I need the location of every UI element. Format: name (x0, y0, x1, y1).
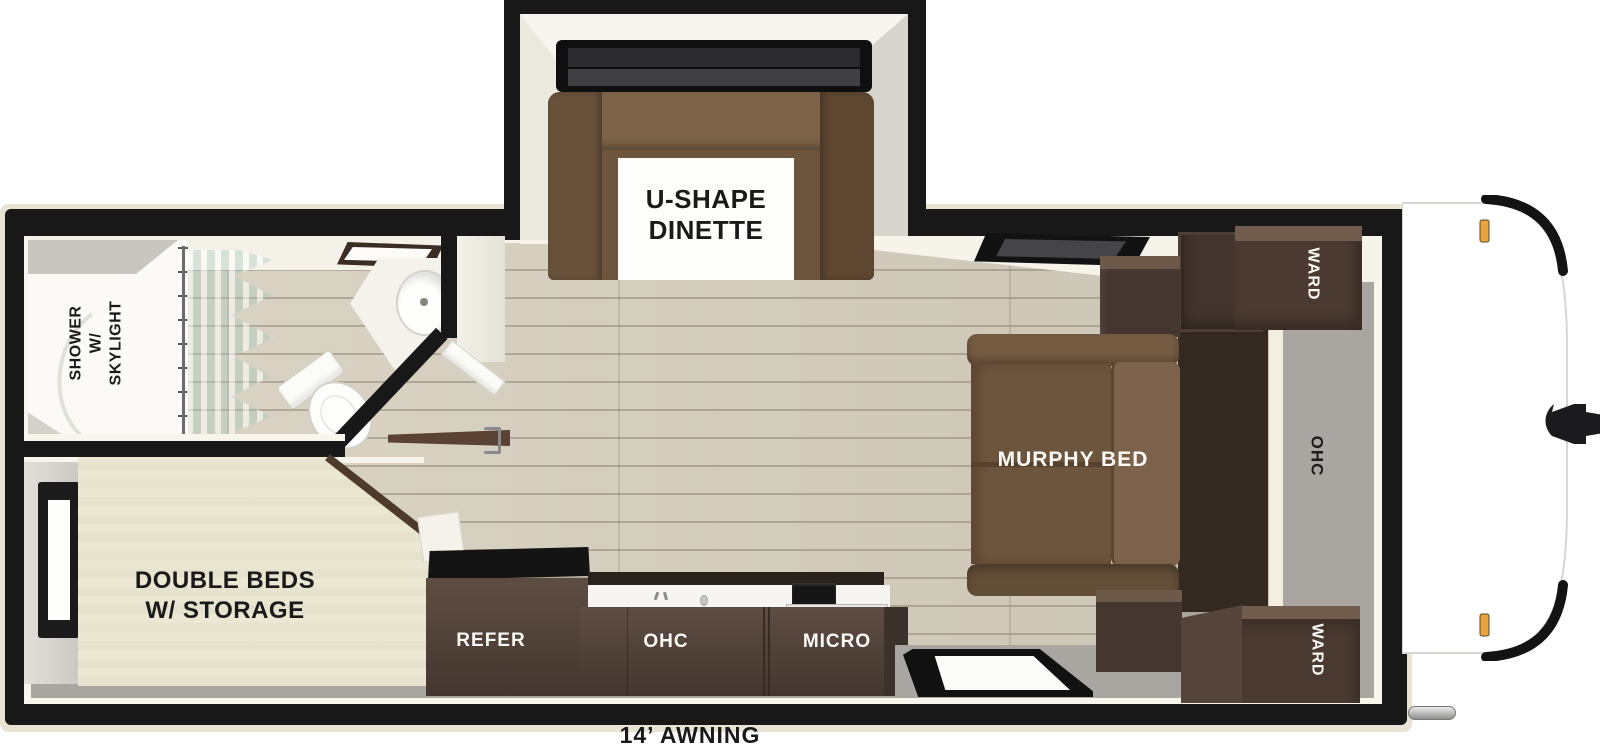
micro-label: MICRO (757, 631, 917, 653)
dinette-label-line1: U-SHAPE (618, 184, 794, 215)
shower-curtain-rod (182, 246, 185, 448)
dinette-arm-left (548, 92, 602, 280)
double-beds-label-line2: W/ STORAGE (95, 596, 355, 626)
dinette-window-pane-bottom (568, 69, 860, 86)
dinette-label-line2: DINETTE (618, 215, 794, 246)
refer-label: REFER (410, 630, 572, 652)
ohc-front-label: OHC (1294, 426, 1338, 486)
murphy-bed-sofa: MURPHY BED (967, 334, 1179, 596)
bedroom-window-pane (48, 500, 70, 620)
murphy-bed-label: MURPHY BED (967, 448, 1179, 472)
ward-top-label-text: WARD (1303, 248, 1321, 301)
ohc-front-label-text: OHC (1306, 436, 1326, 477)
awning-label: 14’ AWNING (540, 722, 840, 749)
murphy-frame-wall-strip (1268, 318, 1283, 610)
nightstand-top-front (1100, 269, 1180, 337)
dinette-slideout-wall-right (908, 0, 926, 240)
bath-sink-drain (420, 298, 428, 306)
dinette-label-box: U-SHAPE DINETTE (618, 158, 794, 280)
dinette-slideout-wall-left (504, 0, 520, 240)
double-beds-label: DOUBLE BEDS W/ STORAGE (95, 566, 355, 630)
murphy-frame (1178, 318, 1268, 612)
front-cap-body (1402, 203, 1567, 653)
ohc-kitchen-label: OHC (586, 631, 746, 653)
ward-top-label: WARD (1292, 240, 1332, 308)
dinette-arm-right (820, 92, 874, 280)
bath-lining-bottom (24, 434, 345, 441)
kitchen-backsplash (588, 572, 884, 585)
shower-label-line1: SHOWER (66, 301, 86, 386)
ward-top-bevel (1235, 226, 1362, 241)
nightstand-top-bevel (1100, 256, 1180, 269)
bumper-bar (1408, 706, 1456, 720)
shower-label-line2: W/ SKYLIGHT (86, 301, 126, 386)
marker-light-bottom (1480, 614, 1489, 636)
double-beds-label-line1: DOUBLE BEDS (95, 566, 355, 596)
ward-bottom-label-text: WARD (1307, 624, 1325, 677)
dinette-slideout-wall-top (504, 0, 926, 14)
bath-wall-face-right (457, 236, 505, 362)
dinette-window-pane-top (568, 48, 860, 67)
front-cap (1402, 195, 1600, 661)
marker-light-top (1480, 220, 1489, 242)
bath-wall-vertical (441, 226, 457, 338)
bath-bedroom-wall (5, 441, 345, 457)
refrigerator-top (428, 547, 590, 580)
wall-table-clamp (484, 427, 501, 454)
floorplan-canvas: SHOWER W/ SKYLIGHT DOUBLE BEDS W/ STORAG… (0, 0, 1600, 749)
kitchen-sink-dot (700, 595, 708, 606)
ward-bottom-label: WARD (1296, 614, 1336, 686)
nightstand-bottom-bevel (1096, 590, 1182, 602)
dinette-seat: U-SHAPE DINETTE (548, 92, 874, 280)
nightstand-bottom-front (1096, 602, 1182, 672)
shower-label: SHOWER W/ SKYLIGHT (64, 258, 128, 428)
